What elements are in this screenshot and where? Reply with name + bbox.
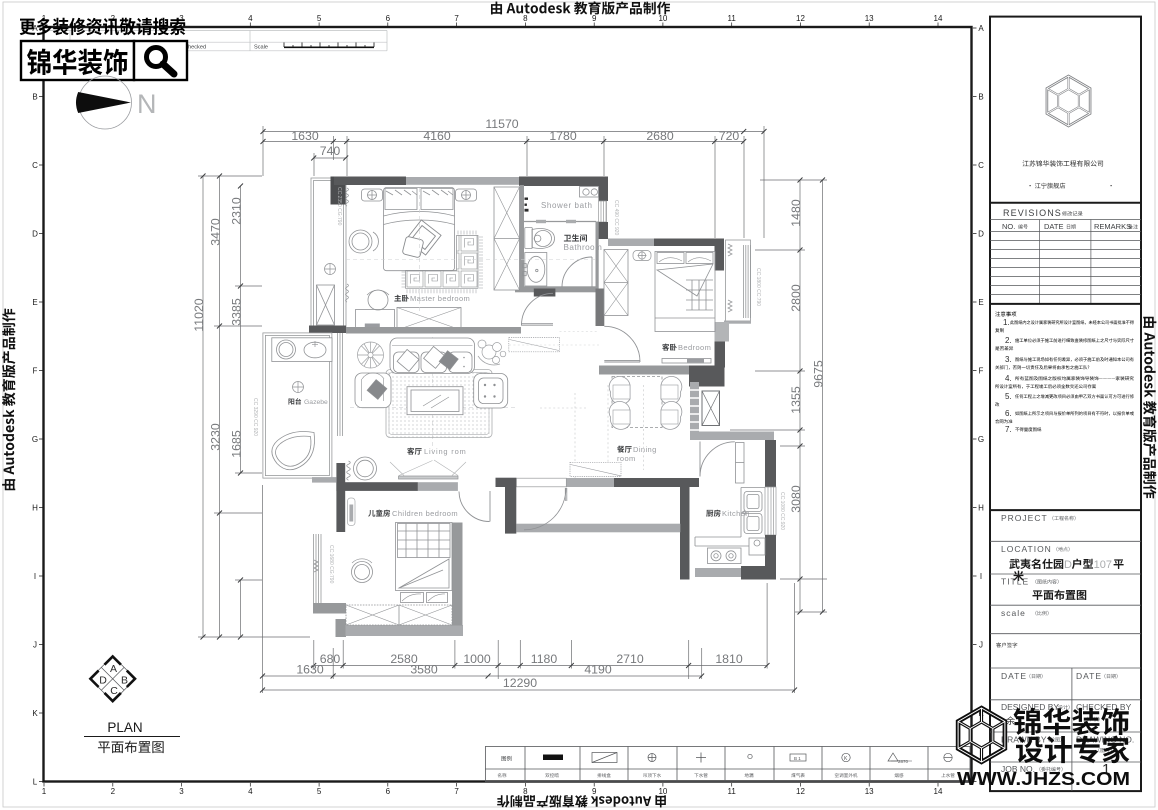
svg-text:LOCATION: LOCATION [1001, 544, 1052, 554]
svg-text:Dining: Dining [633, 445, 657, 454]
svg-text:2.: 2. [1005, 336, 1012, 345]
svg-text:Kitchen: Kitchen [722, 509, 750, 518]
svg-text:4: 4 [248, 14, 253, 23]
svg-text:2680: 2680 [646, 129, 674, 143]
svg-text:1.: 1. [1003, 318, 1010, 327]
svg-text:12: 12 [796, 14, 805, 23]
svg-text:A: A [110, 663, 117, 675]
svg-text:F: F [979, 367, 984, 376]
svg-text:room: room [617, 454, 636, 463]
svg-text:1355: 1355 [789, 386, 803, 414]
svg-text:9675: 9675 [812, 360, 826, 388]
svg-text:NO.: NO. [1002, 222, 1015, 231]
svg-text:107: 107 [1094, 559, 1112, 571]
svg-text:12290: 12290 [503, 676, 537, 690]
svg-text:1180: 1180 [531, 652, 558, 666]
svg-text:E: E [978, 298, 983, 307]
svg-text:CHECKED BY: CHECKED BY [1076, 702, 1132, 712]
svg-text:4.: 4. [1005, 374, 1012, 383]
svg-text:E: E [32, 298, 37, 307]
svg-text:11: 11 [728, 787, 737, 796]
svg-text:12: 12 [796, 787, 805, 796]
svg-text:1000: 1000 [463, 652, 491, 666]
svg-text:B: B [978, 93, 983, 102]
svg-text:4190: 4190 [584, 663, 612, 677]
svg-text:J: J [979, 641, 983, 650]
svg-text:11570: 11570 [485, 117, 518, 131]
svg-text:J: J [33, 641, 37, 650]
svg-text:5: 5 [317, 787, 322, 796]
svg-text:1810: 1810 [715, 652, 743, 666]
svg-text:Children bedroom: Children bedroom [392, 509, 458, 518]
svg-text:720: 720 [719, 129, 740, 143]
svg-text:3385: 3385 [230, 298, 244, 326]
svg-text:CC:2350 CG:790: CC:2350 CG:790 [336, 187, 342, 226]
svg-text:D: D [978, 230, 984, 239]
svg-text:3.: 3. [1005, 355, 1012, 364]
svg-text:4160: 4160 [423, 129, 451, 143]
svg-text:1685: 1685 [230, 430, 244, 458]
svg-text:D: D [32, 230, 38, 239]
svg-text:8: 8 [523, 787, 528, 796]
svg-text:Living rom: Living rom [424, 447, 467, 456]
svg-text:C: C [32, 161, 38, 170]
svg-text:F: F [33, 367, 38, 376]
svg-text:1630: 1630 [291, 129, 319, 143]
svg-text:5: 5 [317, 14, 322, 23]
svg-text:CC:1080 CC:920: CC:1080 CC:920 [779, 492, 785, 530]
svg-text:10: 10 [658, 14, 667, 23]
svg-text:REVISIONS: REVISIONS [1003, 208, 1062, 218]
svg-text:PLAN: PLAN [107, 720, 142, 735]
svg-text:3: 3 [179, 787, 184, 796]
svg-text:Scale: Scale [254, 45, 268, 51]
svg-text:3470: 3470 [209, 218, 223, 246]
svg-text:1: 1 [42, 787, 47, 796]
svg-text:2: 2 [111, 787, 116, 796]
svg-text:I: I [34, 572, 36, 581]
svg-text:DATE: DATE [1044, 222, 1063, 231]
svg-text:8: 8 [523, 14, 528, 23]
svg-text:2870: 2870 [898, 759, 909, 764]
svg-text:L: L [33, 778, 38, 787]
svg-text:5.: 5. [1005, 392, 1012, 401]
svg-text:2310: 2310 [230, 197, 244, 225]
svg-text:7.: 7. [1005, 425, 1012, 434]
svg-text:N: N [137, 89, 157, 119]
svg-text:PROJECT: PROJECT [1001, 513, 1048, 523]
svg-text:Bathroom: Bathroom [564, 243, 603, 252]
svg-text:CC 490 CC 920: CC 490 CC 920 [613, 200, 619, 236]
svg-text:4: 4 [248, 787, 253, 796]
svg-text:7: 7 [454, 787, 459, 796]
svg-text:C: C [110, 685, 118, 697]
svg-text:2800: 2800 [789, 284, 803, 312]
svg-text:G: G [978, 435, 984, 444]
svg-text:3: 3 [179, 14, 184, 23]
svg-text:Gazebe: Gazebe [304, 399, 328, 406]
svg-text:C: C [978, 161, 984, 170]
svg-text:H: H [978, 504, 984, 513]
svg-text:3080: 3080 [789, 485, 803, 513]
svg-text:11020: 11020 [192, 298, 206, 331]
svg-text:DATE: DATE [1076, 671, 1102, 681]
svg-text:13: 13 [865, 787, 874, 796]
svg-text:DATE: DATE [1001, 671, 1027, 681]
svg-text:scale: scale [1001, 608, 1026, 618]
svg-text:G: G [32, 435, 38, 444]
svg-text:2710: 2710 [616, 652, 644, 666]
svg-text:I: I [980, 572, 982, 581]
svg-text:H: H [32, 504, 38, 513]
svg-text:1480: 1480 [789, 199, 803, 227]
svg-text:6.: 6. [1005, 409, 1012, 418]
svg-text:1780: 1780 [549, 129, 577, 143]
svg-text:B: B [32, 93, 37, 102]
svg-text:3230: 3230 [209, 423, 223, 451]
svg-text:CC:1680 CG:790: CC:1680 CG:790 [328, 545, 334, 584]
svg-text:Shower bath: Shower bath [541, 201, 593, 210]
svg-text:7: 7 [454, 14, 459, 23]
svg-text:9: 9 [592, 787, 597, 796]
svg-text:D: D [99, 674, 107, 686]
svg-text:Master bedroom: Master bedroom [410, 294, 470, 303]
svg-text:6: 6 [386, 787, 391, 796]
svg-text:6: 6 [386, 14, 391, 23]
svg-text:DRAWN BY: DRAWN BY [1001, 735, 1047, 745]
svg-text:14: 14 [934, 14, 943, 23]
svg-text:740: 740 [320, 144, 341, 158]
svg-text:REMARKS: REMARKS [1094, 222, 1131, 231]
svg-text:B: B [121, 674, 128, 686]
svg-text:Bedroom: Bedroom [678, 343, 711, 352]
svg-text:14: 14 [934, 787, 943, 796]
svg-text:A: A [978, 24, 984, 33]
svg-text:WWW.JHZS.COM: WWW.JHZS.COM [957, 768, 1130, 789]
svg-text:13: 13 [865, 14, 874, 23]
svg-text:CC:1800 CC:790: CC:1800 CC:790 [755, 268, 761, 306]
svg-text:1630: 1630 [296, 663, 324, 677]
svg-text:CC 3290 CC 920: CC 3290 CC 920 [252, 398, 258, 436]
svg-text:D: D [1064, 559, 1072, 571]
svg-text:11: 11 [728, 14, 737, 23]
svg-text:3580: 3580 [410, 663, 438, 677]
svg-text:TITLE: TITLE [1001, 577, 1029, 587]
svg-text:10: 10 [658, 787, 667, 796]
svg-text:9: 9 [592, 14, 597, 23]
svg-text:B 1: B 1 [794, 756, 801, 761]
svg-text:K: K [32, 709, 38, 718]
